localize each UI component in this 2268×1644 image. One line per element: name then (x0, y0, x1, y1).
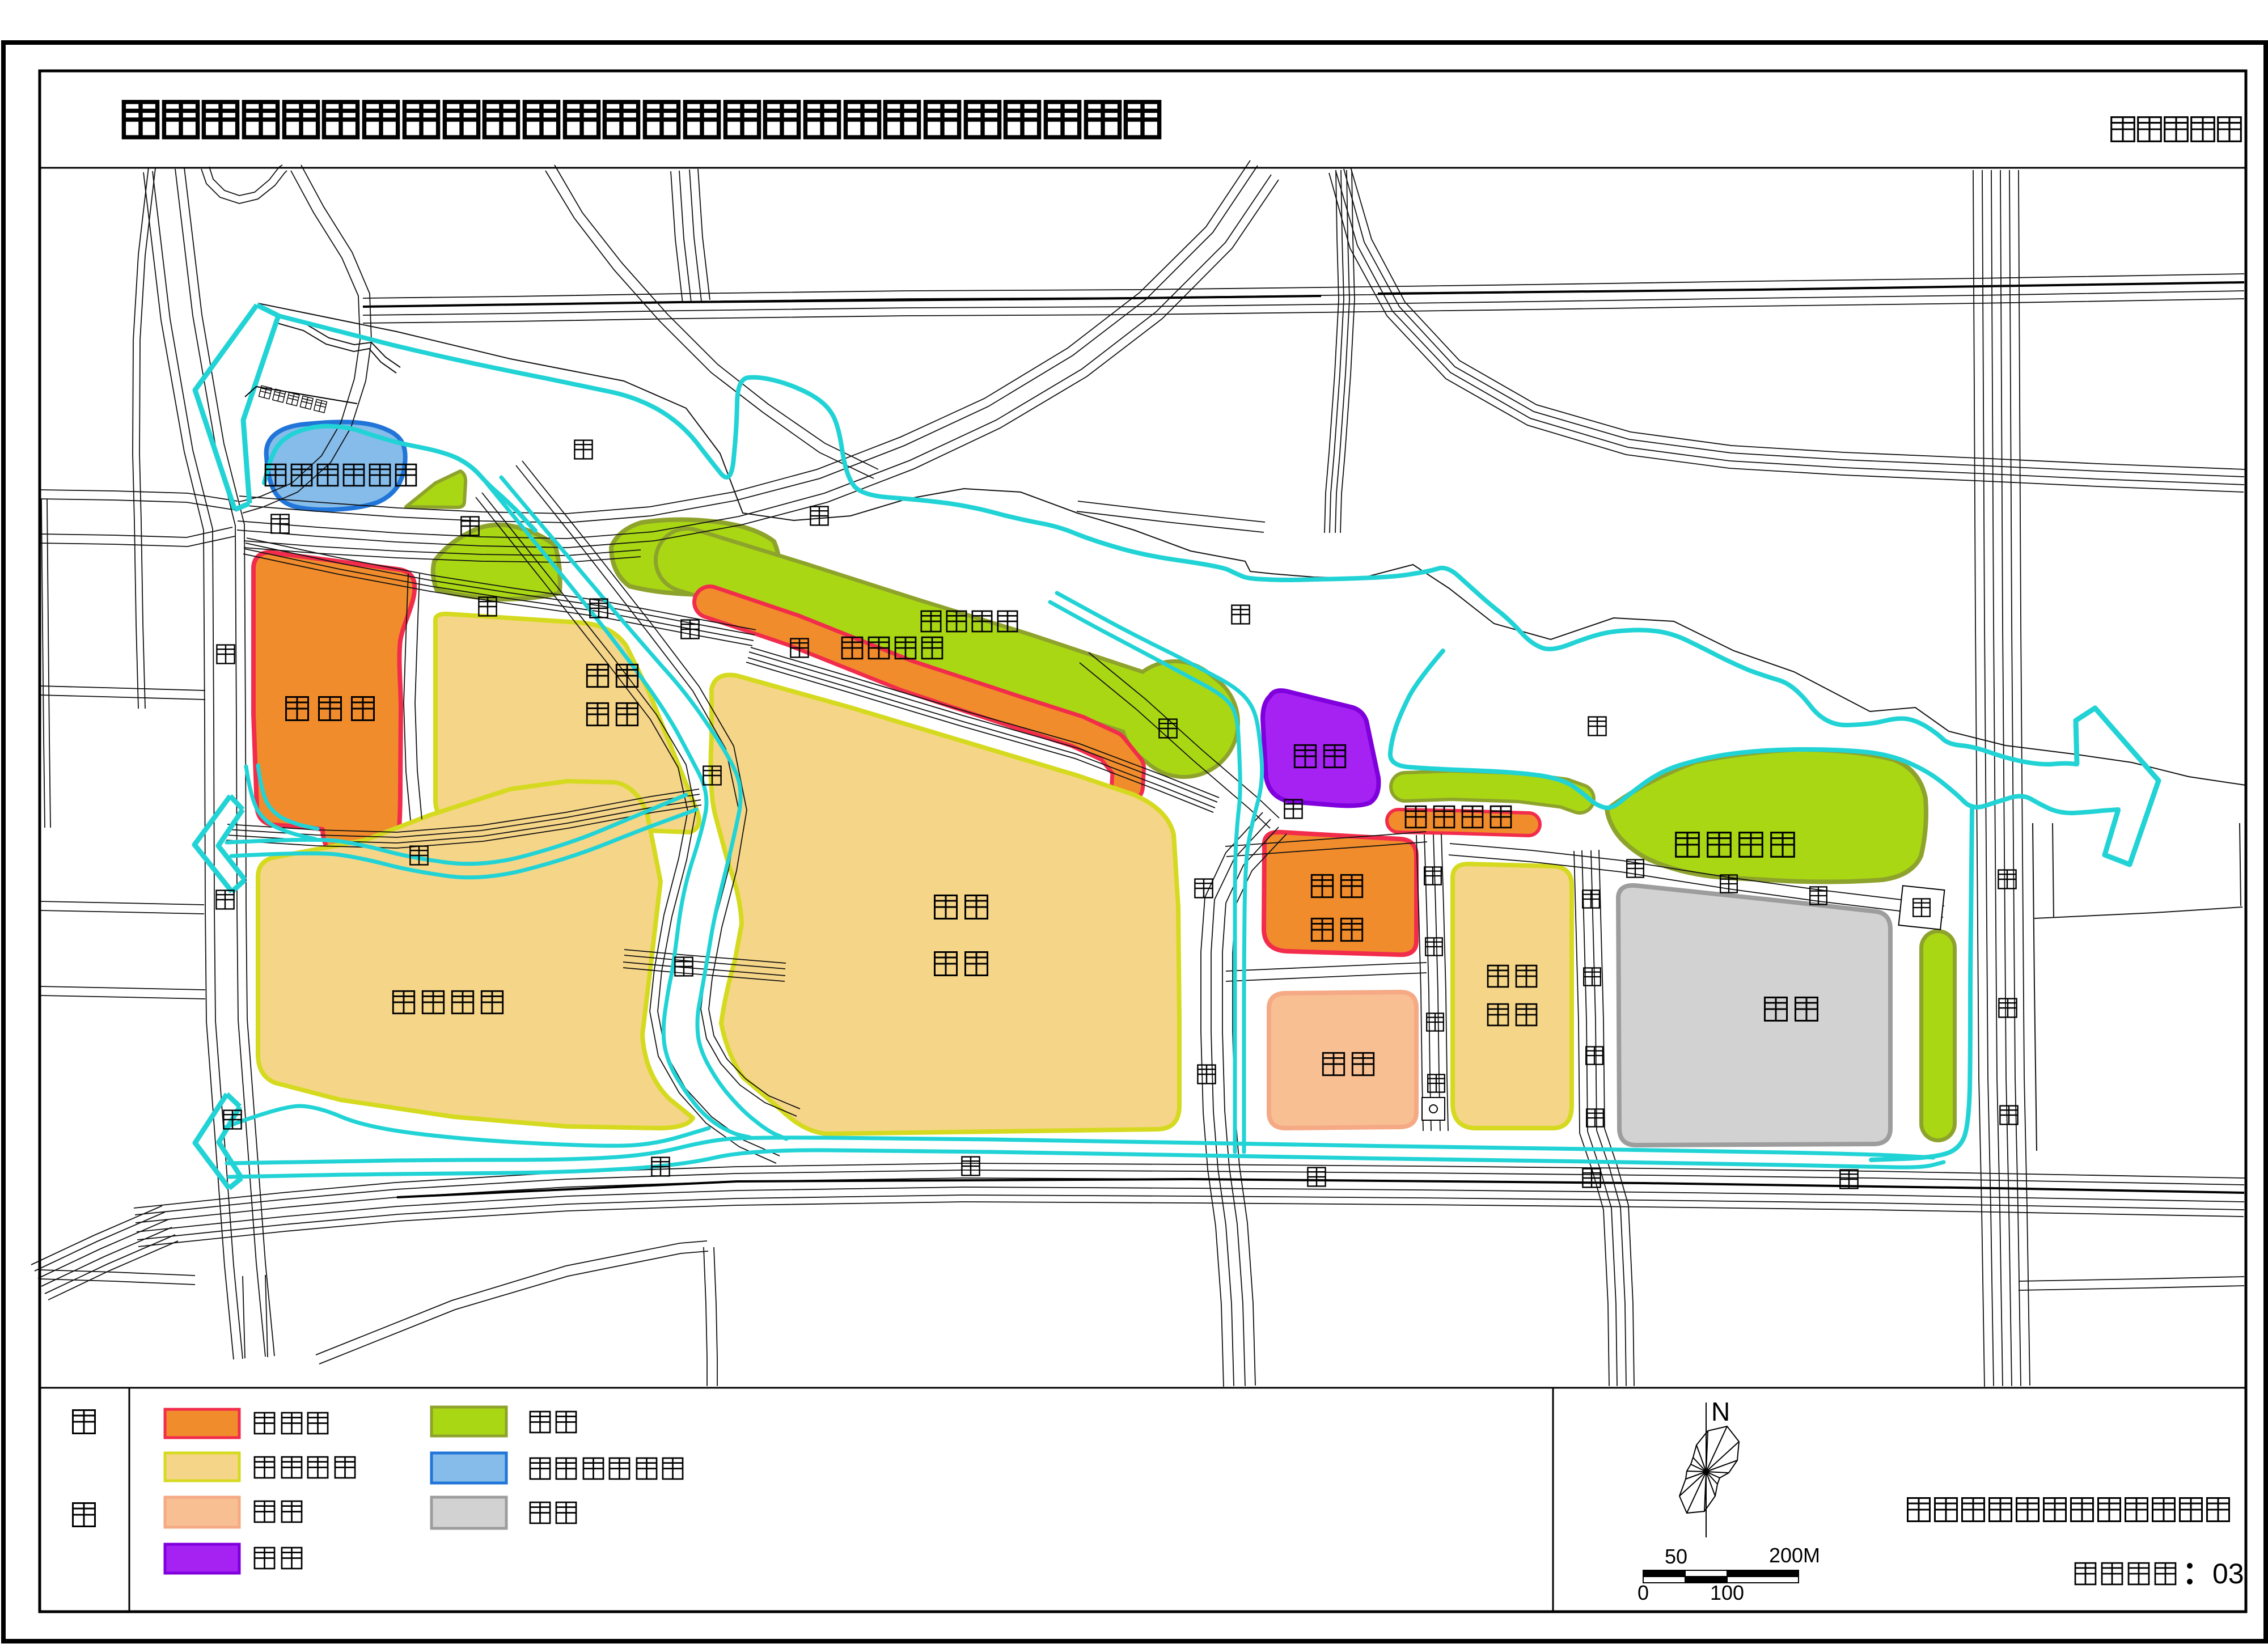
svg-text:N: N (1711, 1397, 1730, 1426)
svg-text:100: 100 (1710, 1581, 1744, 1604)
svg-text:0: 0 (1637, 1581, 1649, 1604)
svg-text:50: 50 (1665, 1545, 1687, 1568)
svg-text:03: 03 (2212, 1558, 2244, 1590)
svg-text:200M: 200M (1769, 1544, 1820, 1567)
